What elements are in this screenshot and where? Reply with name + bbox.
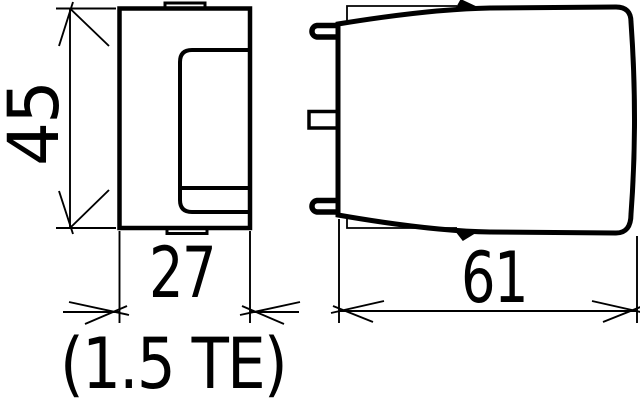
side-view [309, 0, 635, 240]
side-view-middle-terminal [309, 112, 340, 129]
front-view [120, 3, 251, 234]
depth-dimension-label: 61 [461, 237, 527, 319]
width-te-label: (1.5 TE) [60, 323, 286, 403]
width-dimension-label: 27 [149, 232, 215, 314]
width-dim-arrow-right [240, 302, 300, 324]
height-dimension-label: 45 [0, 82, 75, 166]
side-view-housing-outline [338, 7, 635, 233]
dimension-drawing-canvas: 45 27 (1.5 TE) 61 [0, 0, 640, 403]
dimension-drawing: 45 27 (1.5 TE) 61 [0, 0, 640, 403]
front-view-body-outline [120, 9, 251, 229]
